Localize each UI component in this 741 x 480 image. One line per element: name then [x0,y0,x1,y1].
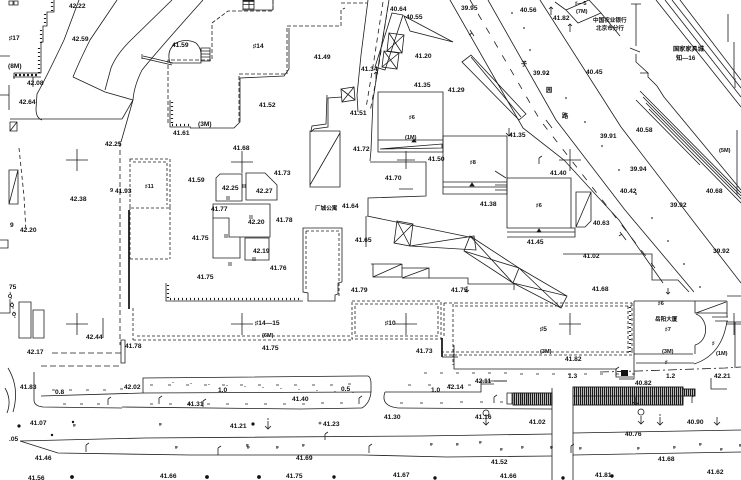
svg-text:♯: ♯ [712,341,715,347]
svg-text:(3M): (3M) [198,121,212,128]
svg-text:岳阳大厦: 岳阳大厦 [655,315,678,323]
svg-text:♯8: ♯8 [470,160,476,166]
svg-text:40.68: 40.68 [706,188,723,195]
svg-text:(1M): (1M) [716,351,728,357]
svg-text:41.93: 41.93 [115,188,132,195]
svg-text:39.91: 39.91 [600,133,617,140]
svg-text:41.70: 41.70 [385,175,402,182]
svg-text:42.64: 42.64 [19,99,36,106]
svg-text:40.45: 40.45 [586,69,603,76]
svg-text:(6M): (6M) [262,333,274,339]
svg-text:9: 9 [10,222,14,229]
svg-text:41.59: 41.59 [188,177,205,184]
svg-text:♯5: ♯5 [540,326,547,333]
svg-text:42.02: 42.02 [124,384,141,391]
svg-text:39.92: 39.92 [670,202,687,209]
svg-text:41.21: 41.21 [230,423,247,430]
svg-text:中国农业银行: 中国农业银行 [593,16,627,24]
svg-text:♯17: ♯17 [9,35,20,42]
svg-text:41.46: 41.46 [35,455,52,462]
svg-text:41.68: 41.68 [658,456,675,463]
svg-text:知—16: 知—16 [675,54,696,62]
svg-text:41.35: 41.35 [509,132,526,139]
svg-text:♯14—15: ♯14—15 [255,320,280,327]
svg-text:41.51: 41.51 [350,110,367,117]
svg-text:41.66: 41.66 [160,473,177,480]
svg-text:40.42: 40.42 [620,188,637,195]
svg-text:(3M): (3M) [540,349,552,355]
svg-text:41.82: 41.82 [553,15,570,22]
svg-text:41.64: 41.64 [342,203,359,210]
svg-text:41.30: 41.30 [384,414,401,421]
svg-text:(7M): (7M) [576,9,588,15]
svg-text:40.55: 40.55 [406,14,423,21]
svg-text:♯7: ♯7 [665,327,671,333]
svg-text:41.75: 41.75 [197,274,214,281]
svg-text:41.38: 41.38 [480,201,497,208]
svg-text:(5M): (5M) [719,148,731,154]
svg-text:♯10: ♯10 [385,320,396,327]
svg-text:♯6: ♯6 [536,203,542,209]
svg-text:♯—5: ♯—5 [575,1,587,7]
svg-text:41.69: 41.69 [296,455,313,462]
svg-text:42.11: 42.11 [475,378,491,385]
svg-text:40.76: 40.76 [625,431,642,438]
svg-text:41.82: 41.82 [565,356,582,363]
svg-text:(1M): (1M) [405,135,417,141]
svg-text:75: 75 [9,284,17,291]
svg-text:北京市分行: 北京市分行 [596,24,624,32]
svg-text:(3M): (3M) [662,349,674,355]
svg-text:9: 9 [110,188,113,194]
svg-text:1.0: 1.0 [431,387,440,394]
svg-text:41.68: 41.68 [592,286,609,293]
svg-text:41.83: 41.83 [20,384,37,391]
svg-text:41.45: 41.45 [527,239,544,246]
svg-text:41.07: 41.07 [30,420,47,427]
svg-text:41.75: 41.75 [262,345,279,352]
svg-text:41.75: 41.75 [192,235,209,242]
svg-text:41.66: 41.66 [500,473,517,480]
svg-text:42.21: 42.21 [714,373,731,380]
svg-text:42.19: 42.19 [253,248,270,255]
svg-text:40.58: 40.58 [636,127,653,134]
svg-text:41.73: 41.73 [274,170,291,177]
svg-text:41.02: 41.02 [529,419,546,426]
svg-text:42.59: 42.59 [72,36,89,43]
svg-text:42.27: 42.27 [256,188,273,195]
svg-text:39.94: 39.94 [630,166,647,173]
svg-text:41.49: 41.49 [314,54,331,61]
svg-text:41.79: 41.79 [351,287,368,294]
svg-text:♯: ♯ [665,360,668,366]
svg-text:42.08: 42.08 [27,80,44,87]
svg-text:♯6: ♯6 [409,115,415,121]
svg-text:41.50: 41.50 [428,156,445,163]
svg-text:41.59: 41.59 [172,42,189,49]
svg-text:41.78: 41.78 [276,217,293,224]
svg-text:41.75: 41.75 [286,473,303,480]
svg-text:41.56: 41.56 [28,475,45,480]
svg-text:(8M): (8M) [8,63,22,70]
svg-text:42.20: 42.20 [248,219,265,226]
svg-text:路: 路 [562,112,569,120]
svg-text:1.2: 1.2 [666,373,675,380]
svg-text:1.0: 1.0 [218,387,227,394]
svg-text:42.25: 42.25 [222,185,239,192]
svg-text:41.40: 41.40 [550,170,567,177]
svg-text:41.68: 41.68 [233,145,250,152]
svg-text:42.44: 42.44 [86,334,103,341]
svg-text:41.78: 41.78 [125,343,142,350]
svg-text:1.3: 1.3 [568,373,577,380]
svg-text:41.02: 41.02 [583,253,600,260]
svg-text:41.73: 41.73 [416,348,433,355]
svg-text:园: 园 [546,86,552,94]
svg-text:.05: .05 [9,436,18,443]
svg-text:41.75: 41.75 [451,287,468,294]
svg-text:41.31: 41.31 [187,401,204,408]
svg-text:41.76: 41.76 [270,265,287,272]
svg-text:♯14: ♯14 [253,43,264,50]
svg-text:41.67: 41.67 [393,472,410,479]
svg-text:41.52: 41.52 [259,102,276,109]
svg-text:39.92: 39.92 [533,70,550,77]
svg-text:41.34: 41.34 [361,66,378,73]
svg-text:41.40: 41.40 [292,396,309,403]
svg-text:子: 子 [521,61,528,68]
svg-text:41.77: 41.77 [211,206,228,213]
svg-text:41.72: 41.72 [353,146,370,153]
svg-text:41.35: 41.35 [414,82,431,89]
svg-text:40.82: 40.82 [635,380,652,387]
svg-text:41.81: 41.81 [595,472,612,479]
svg-text:40.63: 40.63 [593,220,610,227]
svg-text:41.29: 41.29 [448,87,465,94]
svg-text:41.65: 41.65 [355,237,372,244]
svg-text:♯6: ♯6 [658,301,664,307]
svg-text:0.5: 0.5 [341,386,350,393]
svg-text:39.92: 39.92 [713,248,730,255]
svg-text:40.64: 40.64 [390,6,407,13]
svg-text:42.25: 42.25 [105,141,122,148]
svg-text:42.17: 42.17 [27,349,44,356]
svg-text:39.95: 39.95 [461,5,478,12]
svg-text:41.20: 41.20 [415,53,432,60]
svg-text:41.16: 41.16 [475,414,492,421]
svg-text:42.22: 42.22 [69,3,86,10]
svg-text:41.52: 41.52 [491,459,508,466]
svg-text:♯11: ♯11 [145,184,154,190]
svg-text:40.90: 40.90 [687,419,704,426]
svg-text:42.38: 42.38 [70,196,87,203]
svg-text:厂城公寓: 厂城公寓 [315,204,338,212]
svg-text:0.8: 0.8 [55,389,64,396]
svg-text:42.20: 42.20 [20,227,37,234]
svg-text:国家家具城: 国家家具城 [673,45,705,53]
svg-text:41.61: 41.61 [173,130,190,137]
svg-text:42.14: 42.14 [447,384,464,391]
svg-text:41.62: 41.62 [707,469,724,476]
svg-text:41.23: 41.23 [323,421,340,428]
svg-text:40.56: 40.56 [520,7,537,14]
